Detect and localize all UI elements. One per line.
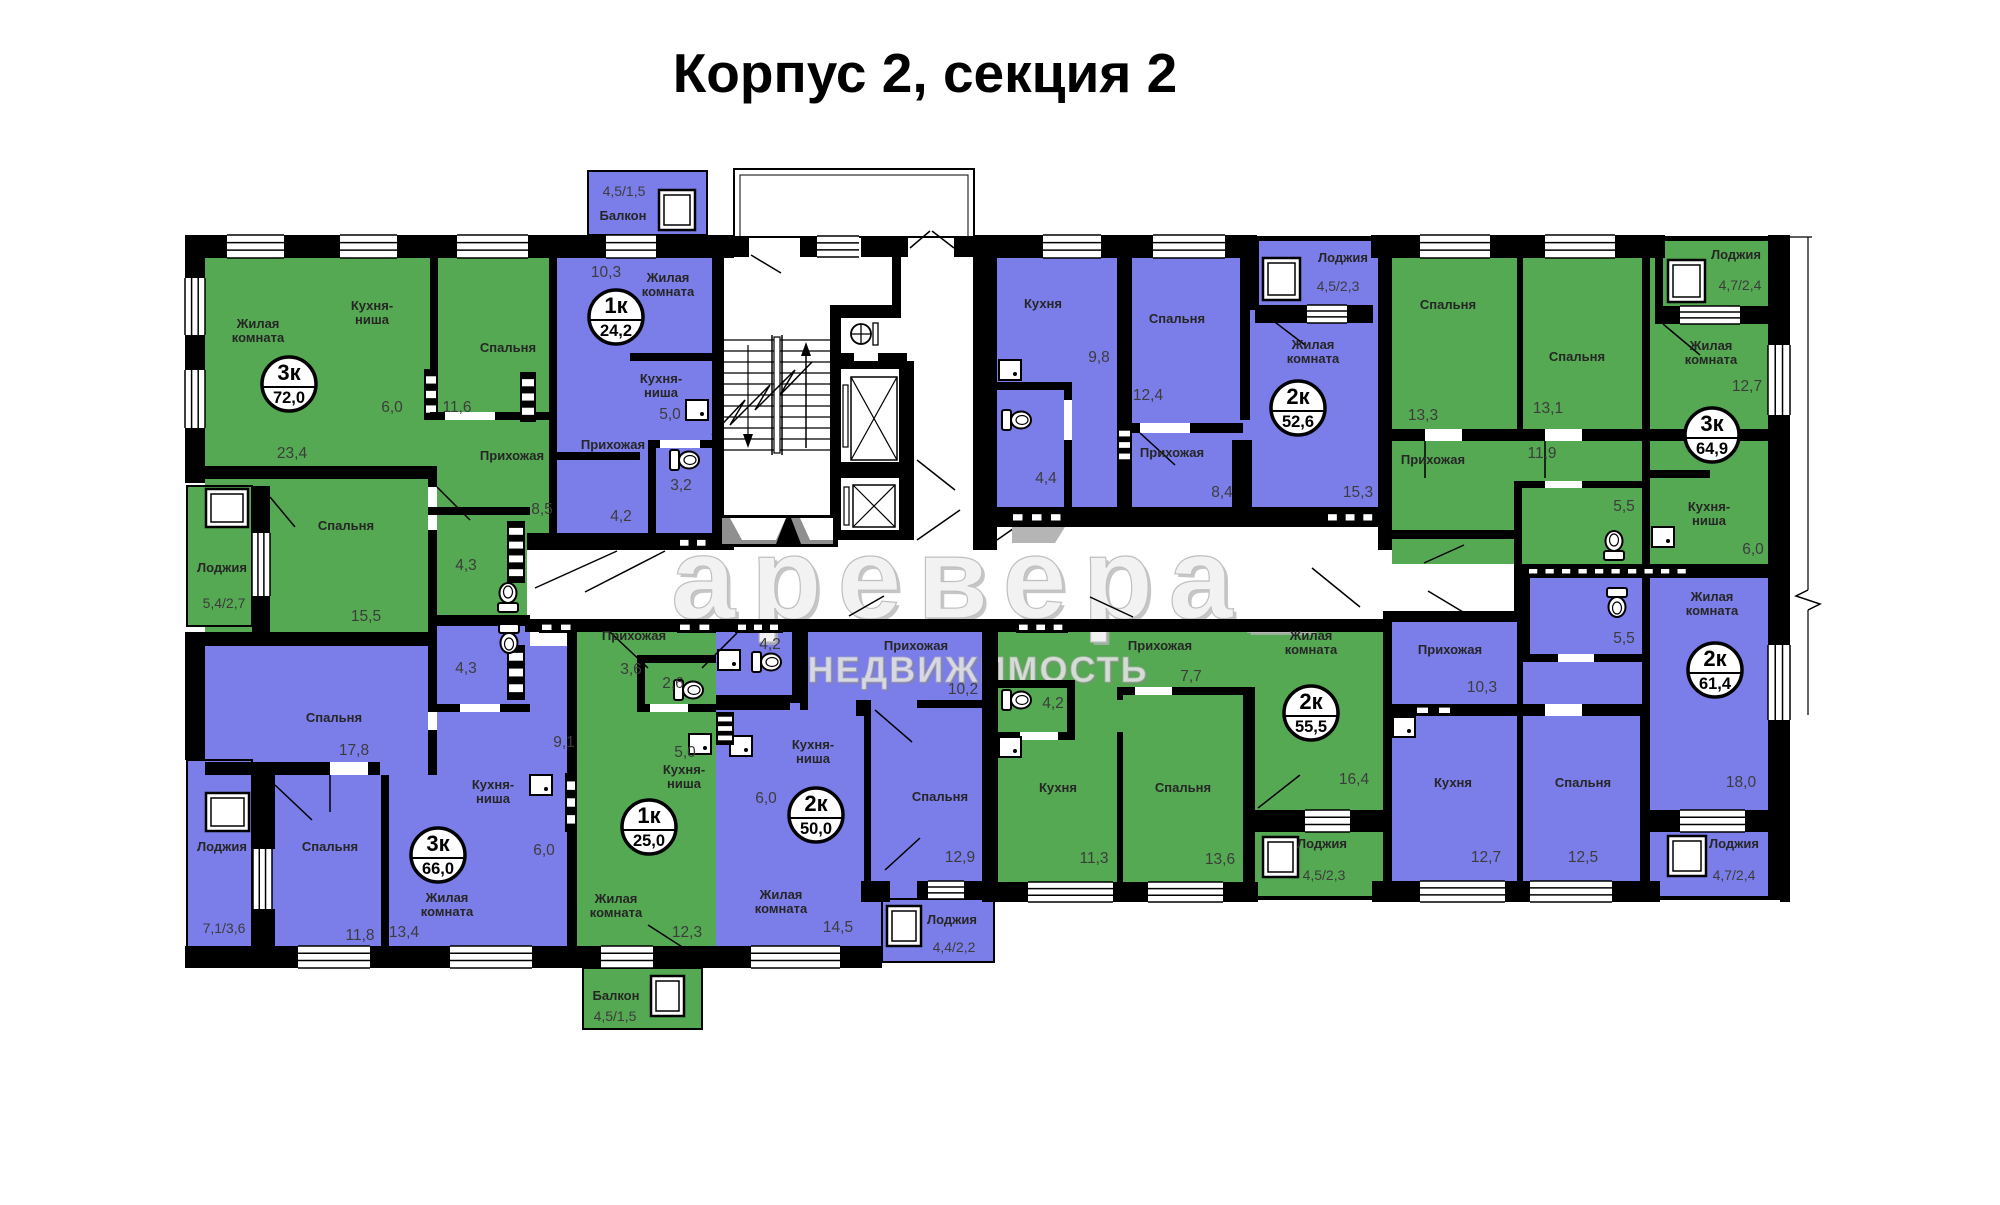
svg-text:4,4: 4,4	[1035, 470, 1057, 487]
svg-text:Спальня: Спальня	[1555, 775, 1611, 790]
svg-text:1к: 1к	[637, 803, 661, 828]
svg-text:Прихожая: Прихожая	[1128, 638, 1192, 653]
svg-text:66,0: 66,0	[422, 860, 454, 878]
svg-text:8,5: 8,5	[531, 501, 553, 518]
svg-text:3к: 3к	[277, 360, 301, 385]
svg-text:8,4: 8,4	[1211, 484, 1233, 501]
svg-text:7,7: 7,7	[1180, 668, 1202, 685]
svg-text:3,2: 3,2	[670, 477, 692, 494]
svg-text:Жилая: Жилая	[1690, 589, 1734, 604]
svg-text:4,3: 4,3	[455, 557, 477, 574]
svg-text:ниша: ниша	[355, 312, 390, 327]
svg-text:комната: комната	[1287, 351, 1340, 366]
svg-text:комната: комната	[642, 284, 695, 299]
svg-text:61,4: 61,4	[1699, 675, 1732, 693]
svg-text:4,5/2,3: 4,5/2,3	[1303, 867, 1346, 883]
svg-text:комната: комната	[755, 901, 808, 916]
svg-text:Спальня: Спальня	[302, 839, 358, 854]
svg-text:11,3: 11,3	[1079, 850, 1108, 867]
svg-text:13,6: 13,6	[1205, 851, 1235, 868]
svg-text:Балкон: Балкон	[593, 988, 640, 1003]
svg-text:14,5: 14,5	[823, 919, 853, 936]
svg-text:64,9: 64,9	[1696, 440, 1728, 458]
svg-text:Корпус 2, секция 2: Корпус 2, секция 2	[673, 42, 1178, 104]
svg-text:Спальня: Спальня	[306, 710, 362, 725]
svg-text:Кухня-: Кухня-	[792, 737, 834, 752]
svg-text:Жилая: Жилая	[1291, 337, 1335, 352]
svg-text:Лоджия: Лоджия	[197, 560, 247, 575]
svg-text:Жилая: Жилая	[759, 887, 803, 902]
svg-text:2к: 2к	[1286, 384, 1310, 409]
svg-text:комната: комната	[1686, 603, 1739, 618]
svg-text:комната: комната	[232, 330, 285, 345]
svg-text:4,7/2,4: 4,7/2,4	[1713, 867, 1756, 883]
svg-text:Кухня-: Кухня-	[640, 371, 682, 386]
svg-text:5,5: 5,5	[1613, 630, 1635, 647]
svg-text:ниша: ниша	[796, 751, 831, 766]
svg-text:6,0: 6,0	[533, 842, 555, 859]
svg-text:11,8: 11,8	[345, 927, 374, 944]
svg-text:Кухня: Кухня	[1434, 775, 1472, 790]
svg-text:комната: комната	[421, 904, 474, 919]
svg-text:16,4: 16,4	[1339, 771, 1370, 788]
svg-text:Прихожая: Прихожая	[480, 448, 544, 463]
svg-text:2,6: 2,6	[662, 675, 684, 692]
svg-text:3к: 3к	[426, 831, 450, 856]
svg-text:4,4/2,2: 4,4/2,2	[933, 939, 976, 955]
svg-text:9,8: 9,8	[1088, 349, 1110, 366]
svg-text:Спальня: Спальня	[318, 518, 374, 533]
svg-text:13,3: 13,3	[1408, 407, 1438, 424]
svg-text:2к: 2к	[804, 791, 828, 816]
svg-text:10,3: 10,3	[591, 264, 621, 281]
svg-text:12,9: 12,9	[945, 849, 975, 866]
svg-text:13,4: 13,4	[389, 924, 420, 941]
svg-text:5,0: 5,0	[674, 744, 696, 761]
svg-text:3к: 3к	[1700, 411, 1724, 436]
svg-text:Балкон: Балкон	[600, 208, 647, 223]
svg-text:комната: комната	[590, 905, 643, 920]
svg-text:комната: комната	[1285, 642, 1338, 657]
svg-text:Прихожая: Прихожая	[1140, 445, 1204, 460]
svg-text:Лоджия: Лоджия	[927, 912, 977, 927]
svg-text:Кухня-: Кухня-	[663, 762, 705, 777]
svg-text:ниша: ниша	[476, 791, 511, 806]
svg-text:Кухня-: Кухня-	[1688, 499, 1730, 514]
svg-text:23,4: 23,4	[277, 445, 308, 462]
svg-text:13,1: 13,1	[1533, 400, 1563, 417]
svg-text:Прихожая: Прихожая	[581, 437, 645, 452]
svg-text:5,0: 5,0	[659, 406, 681, 423]
svg-text:Лоджия: Лоджия	[1297, 836, 1347, 851]
svg-text:2к: 2к	[1703, 646, 1727, 671]
svg-text:Кухня: Кухня	[1039, 780, 1077, 795]
svg-text:4,5/2,3: 4,5/2,3	[1317, 278, 1360, 294]
svg-text:52,6: 52,6	[1282, 413, 1314, 431]
svg-text:Жилая: Жилая	[594, 891, 638, 906]
svg-text:Спальня: Спальня	[1149, 311, 1205, 326]
svg-text:10,2: 10,2	[948, 681, 978, 698]
svg-text:18,0: 18,0	[1726, 774, 1757, 791]
svg-text:Прихожая: Прихожая	[602, 628, 666, 643]
svg-text:Спальня: Спальня	[1420, 297, 1476, 312]
svg-text:1к: 1к	[604, 293, 628, 318]
svg-text:3,6: 3,6	[620, 661, 642, 678]
svg-text:Спальня: Спальня	[480, 340, 536, 355]
svg-text:4,5/1,5: 4,5/1,5	[603, 183, 646, 199]
svg-text:Жилая: Жилая	[1689, 338, 1733, 353]
svg-text:Жилая: Жилая	[1289, 628, 1333, 643]
svg-text:12,3: 12,3	[672, 924, 702, 941]
svg-text:5,4/2,7: 5,4/2,7	[203, 595, 246, 611]
svg-text:15,5: 15,5	[351, 608, 381, 625]
svg-text:Спальня: Спальня	[1549, 349, 1605, 364]
svg-text:7,1/3,6: 7,1/3,6	[203, 920, 246, 936]
svg-text:Жилая: Жилая	[236, 316, 280, 331]
svg-text:Кухня-: Кухня-	[351, 298, 393, 313]
svg-text:ниша: ниша	[644, 385, 679, 400]
svg-text:Прихожая: Прихожая	[884, 638, 948, 653]
svg-text:55,5: 55,5	[1295, 718, 1327, 736]
svg-text:2к: 2к	[1299, 689, 1323, 714]
svg-text:Спальня: Спальня	[912, 789, 968, 804]
svg-text:Прихожая: Прихожая	[1418, 642, 1482, 657]
svg-text:6,0: 6,0	[1742, 541, 1764, 558]
svg-text:11,6: 11,6	[442, 399, 471, 416]
svg-text:4,2: 4,2	[1042, 695, 1064, 712]
svg-text:12,4: 12,4	[1133, 387, 1164, 404]
svg-text:Лоджия: Лоджия	[1318, 250, 1368, 265]
svg-text:Кухня: Кухня	[1024, 296, 1062, 311]
svg-text:12,7: 12,7	[1471, 849, 1501, 866]
svg-text:17,8: 17,8	[339, 742, 369, 759]
svg-text:9,1: 9,1	[553, 734, 575, 751]
svg-text:Прихожая: Прихожая	[1401, 452, 1465, 467]
svg-text:Кухня-: Кухня-	[472, 777, 514, 792]
svg-text:6,0: 6,0	[381, 399, 403, 416]
svg-text:25,0: 25,0	[633, 832, 665, 850]
svg-text:Жилая: Жилая	[425, 890, 469, 905]
svg-text:4,2: 4,2	[759, 636, 781, 653]
svg-text:24,2: 24,2	[600, 322, 632, 340]
svg-text:10,3: 10,3	[1467, 679, 1497, 696]
svg-text:4,3: 4,3	[455, 660, 477, 677]
svg-text:72,0: 72,0	[273, 389, 305, 407]
svg-text:4,2: 4,2	[610, 508, 632, 525]
svg-text:Лоджия: Лоджия	[1709, 836, 1759, 851]
svg-text:4,7/2,4: 4,7/2,4	[1719, 277, 1762, 293]
svg-text:Лоджия: Лоджия	[197, 839, 247, 854]
svg-text:Лоджия: Лоджия	[1711, 247, 1761, 262]
svg-text:Жилая: Жилая	[646, 270, 690, 285]
svg-text:50,0: 50,0	[800, 820, 832, 838]
svg-text:15,3: 15,3	[1343, 484, 1373, 501]
svg-text:12,5: 12,5	[1568, 849, 1598, 866]
svg-text:11,9: 11,9	[1527, 445, 1556, 462]
svg-text:ниша: ниша	[1692, 513, 1727, 528]
svg-text:ниша: ниша	[667, 776, 702, 791]
svg-text:5,5: 5,5	[1613, 498, 1635, 515]
svg-text:12,7: 12,7	[1732, 378, 1762, 395]
svg-text:4,5/1,5: 4,5/1,5	[594, 1008, 637, 1024]
svg-text:комната: комната	[1685, 352, 1738, 367]
svg-text:Спальня: Спальня	[1155, 780, 1211, 795]
svg-text:6,0: 6,0	[755, 790, 777, 807]
